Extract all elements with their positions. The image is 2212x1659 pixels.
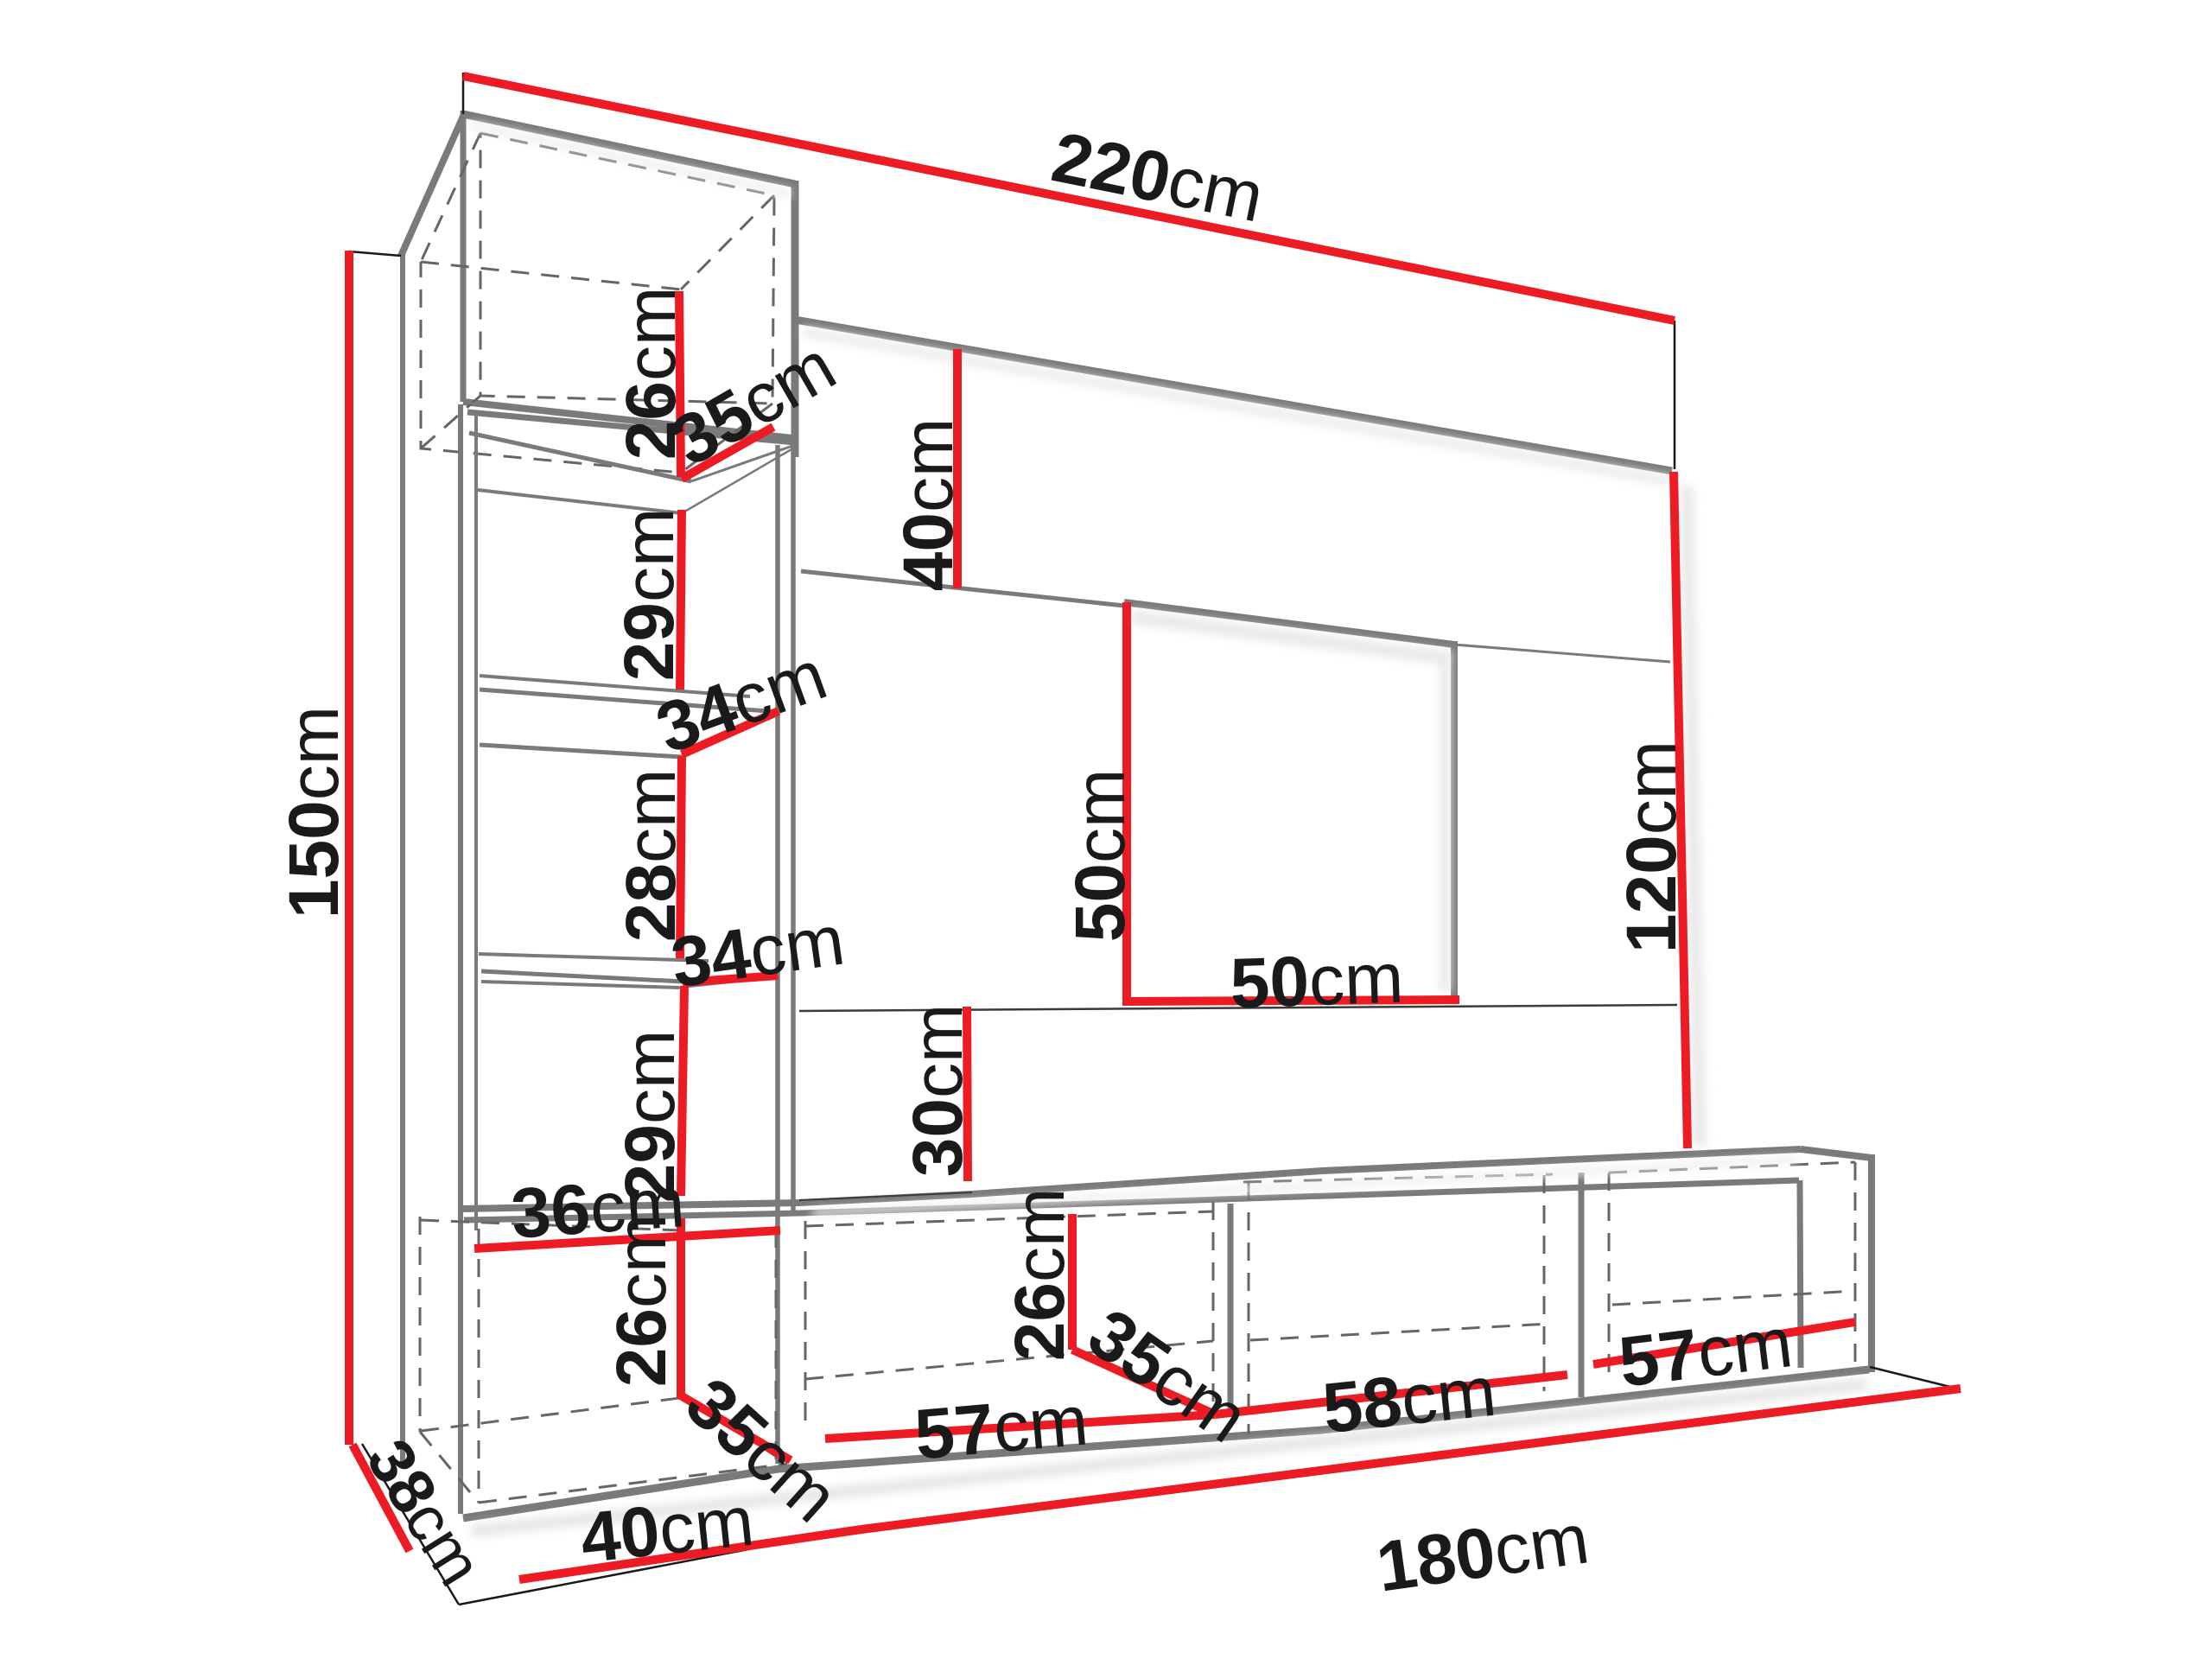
svg-text:150cm: 150cm <box>275 706 353 918</box>
svg-text:30cm: 30cm <box>899 1004 977 1178</box>
svg-text:40cm: 40cm <box>889 418 968 592</box>
svg-text:26cm: 26cm <box>1001 1188 1079 1362</box>
svg-text:28cm: 28cm <box>612 769 690 943</box>
svg-text:26cm: 26cm <box>602 1214 681 1388</box>
svg-text:29cm: 29cm <box>610 508 689 682</box>
svg-text:57cm: 57cm <box>912 1381 1091 1474</box>
svg-text:50cm: 50cm <box>1229 938 1405 1023</box>
svg-text:120cm: 120cm <box>1612 741 1691 953</box>
svg-text:50cm: 50cm <box>1061 769 1140 943</box>
